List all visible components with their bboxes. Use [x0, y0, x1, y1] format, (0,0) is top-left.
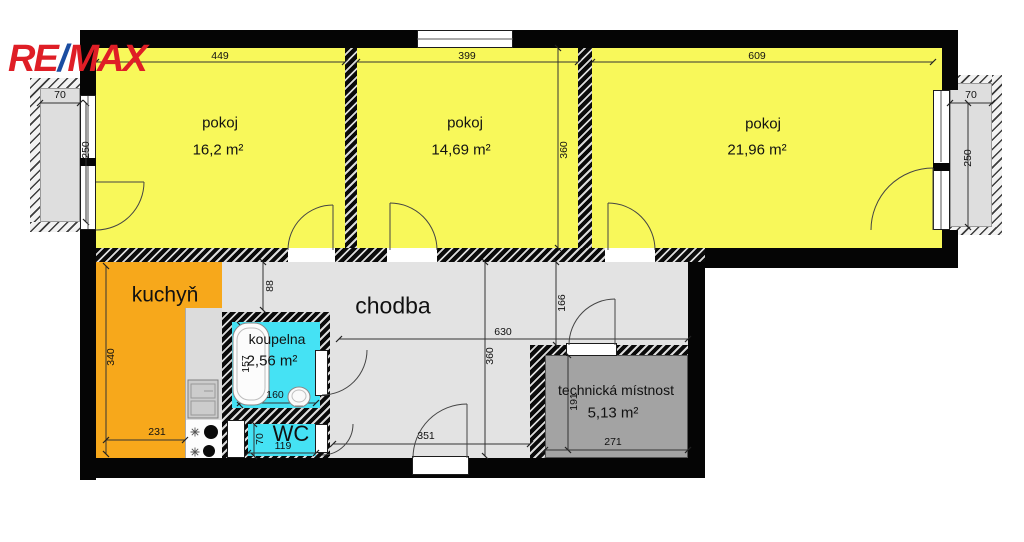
wall-right-mid: [942, 230, 958, 248]
dim-kitchen-width: 231: [148, 427, 166, 438]
entrance-door-threshold: [412, 456, 469, 475]
room2-label: pokoj: [447, 116, 483, 131]
dim-bath-tub-length: 157: [241, 355, 252, 373]
wall-room1-room2: [345, 48, 357, 248]
room1-area: 16,2 m²: [193, 143, 244, 158]
balcony-right-wall-outer: [992, 75, 1002, 235]
bathroom-area: 2,56 m²: [247, 354, 298, 369]
wall-room3-bottom: [705, 248, 958, 268]
kitchen-stove: [185, 420, 222, 458]
dim-room2-width: 399: [458, 51, 476, 62]
wall-left-lower: [80, 230, 96, 480]
dim-tech-width: 271: [604, 437, 622, 448]
kitchen-label: kuchyň: [132, 285, 199, 306]
wc-door-leaf: [315, 424, 328, 453]
window-right: [933, 90, 950, 230]
floor-plan: RE/MAX pokoj 16,2 m² pokoj 14,69 m² poko…: [0, 0, 1024, 542]
technical-area: 5,13 m²: [588, 406, 639, 421]
remax-logo-max: MAX: [67, 38, 145, 80]
wall-right-lower: [688, 262, 705, 478]
remax-logo-slash: /: [57, 38, 68, 80]
wall-rooms-hall-b: [335, 248, 387, 262]
dim-kitchen-height: 340: [106, 348, 117, 366]
remax-logo-re: RE: [8, 38, 57, 80]
balcony-left-wall-bottom: [30, 222, 80, 232]
dim-room3-width: 609: [748, 51, 766, 62]
dim-balcony-left-depth: 70: [54, 90, 66, 101]
window-right-divider: [933, 163, 950, 171]
dim-balcony-right-depth: 70: [965, 90, 977, 101]
room3-area: 21,96 m²: [727, 143, 786, 158]
room2-area: 14,69 m²: [431, 143, 490, 158]
wall-room2-room3: [578, 48, 592, 248]
wall-rooms-hall-a: [96, 248, 288, 262]
technical-door-leaf: [566, 343, 617, 356]
dim-wc-width: 119: [275, 441, 292, 452]
installation-shaft: [227, 420, 245, 458]
bathroom-door-leaf: [315, 350, 328, 396]
wall-bottom: [80, 458, 705, 478]
wall-top: [80, 30, 958, 48]
dim-tech-height: 191: [569, 393, 580, 411]
wall-rooms-hall-d: [655, 248, 705, 262]
room3-label: pokoj: [745, 117, 781, 132]
dim-wc-height: 70: [255, 433, 266, 445]
remax-logo: RE/MAX: [8, 40, 146, 78]
window-left-divider: [80, 158, 96, 166]
dim-hall-width: 630: [494, 327, 512, 338]
room1-label: pokoj: [202, 116, 238, 131]
dim-hall-right-segment: 166: [557, 294, 568, 312]
wall-rooms-hall-c: [437, 248, 605, 262]
balcony-left-wall-outer: [30, 78, 40, 232]
bathroom-label: koupelna: [249, 332, 306, 346]
dim-bath-width: 160: [266, 390, 284, 401]
dim-room1-width: 449: [211, 51, 229, 62]
kitchen-counter: [185, 308, 222, 420]
dim-balcony-left-width: 250: [81, 141, 92, 159]
dim-kitchen-pass: 88: [265, 280, 276, 292]
dim-hall-height: 360: [485, 347, 496, 365]
dim-hall-bottom-segment: 351: [417, 431, 435, 442]
hallway-label: chodba: [355, 295, 430, 318]
dim-room2-height: 360: [559, 141, 570, 159]
window-room2-top: [417, 30, 513, 48]
dim-balcony-right-width: 250: [963, 149, 974, 167]
balcony-left-floor: [40, 88, 80, 222]
wall-right-upper: [942, 30, 958, 90]
